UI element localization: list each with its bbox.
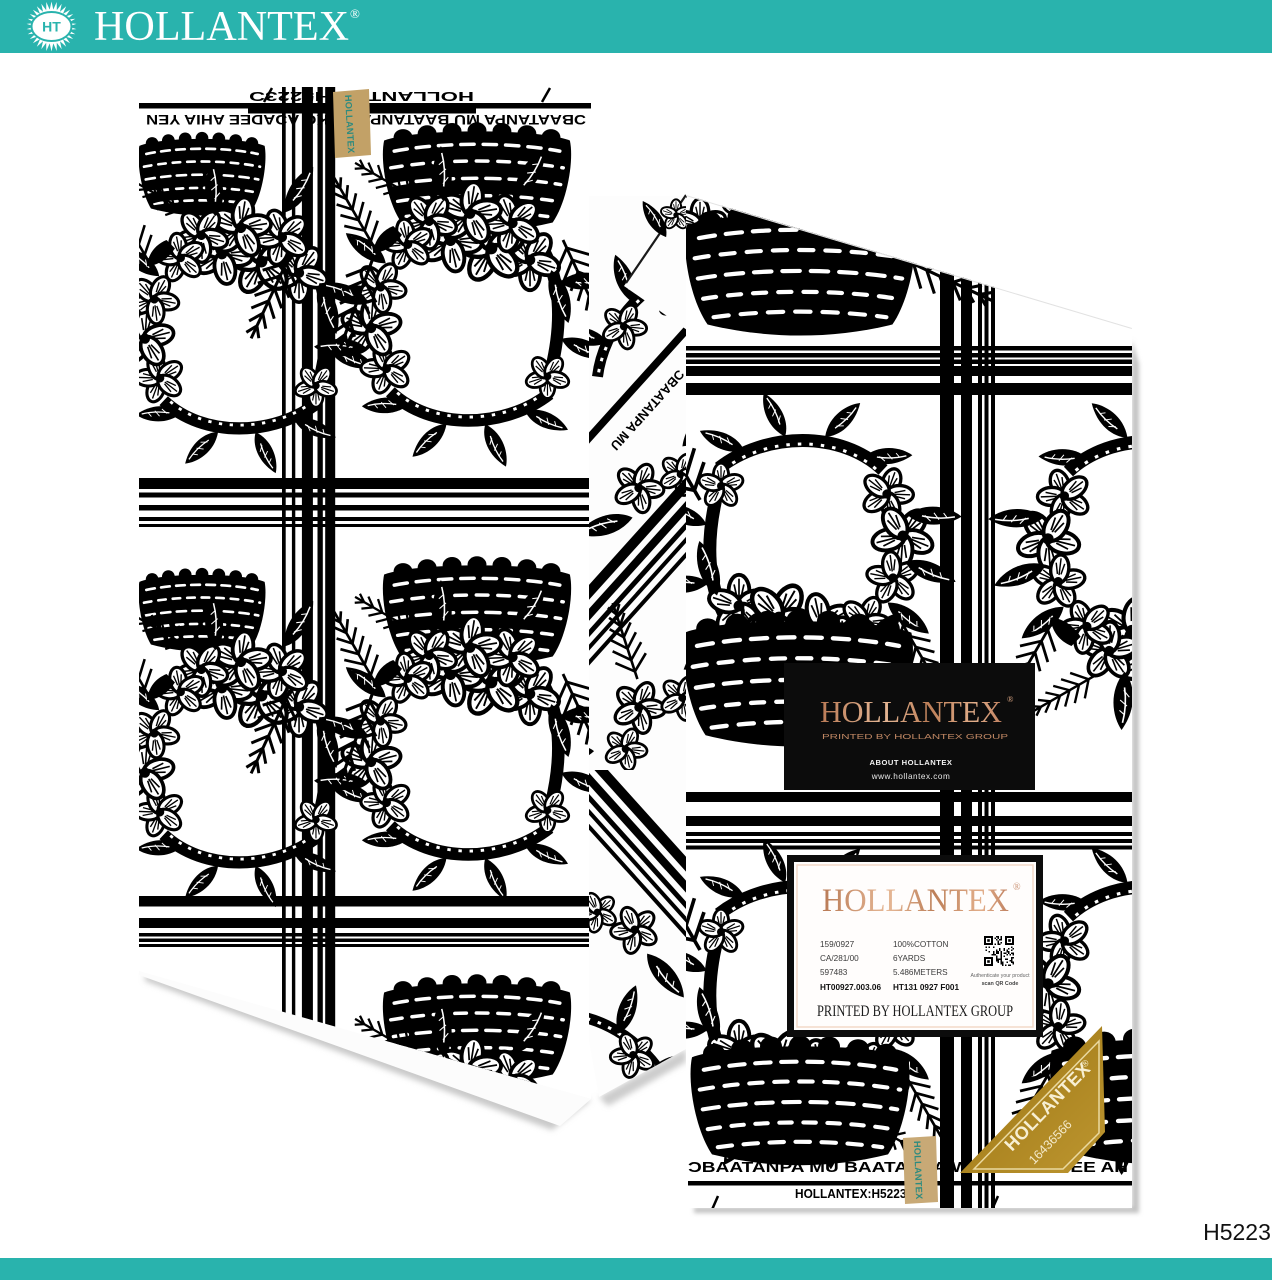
svg-text:CA/281/00: CA/281/00	[820, 954, 859, 963]
svg-text:ABOUT HOLLANTEX: ABOUT HOLLANTEX	[869, 758, 952, 767]
svg-text:HOLLANTEX: HOLLANTEX	[912, 1141, 924, 1201]
svg-text:HOLLANTEX:H5223Ɔ: HOLLANTEX:H5223Ɔ	[795, 1186, 915, 1201]
svg-text:scan QR Code: scan QR Code	[982, 981, 1019, 987]
svg-text:HOLLANTEX: HOLLANTEX	[94, 4, 349, 50]
svg-text:H5223: H5223	[1203, 1219, 1271, 1245]
svg-text:5.486METERS: 5.486METERS	[893, 968, 948, 977]
svg-text:597483: 597483	[820, 968, 848, 977]
svg-text:®: ®	[1007, 694, 1014, 704]
svg-text:®: ®	[1013, 882, 1021, 893]
svg-text:159/0927: 159/0927	[820, 940, 855, 949]
svg-text:HOLLANTEX: HOLLANTEX	[822, 883, 1009, 919]
svg-text:PRINTED BY HOLLANTEX GROUP: PRINTED BY HOLLANTEX GROUP	[822, 732, 1008, 741]
svg-text:HT131 0927 F001: HT131 0927 F001	[893, 983, 959, 992]
svg-text:100%COTTON: 100%COTTON	[893, 940, 948, 949]
svg-text:HOLLANTEX: HOLLANTEX	[820, 694, 1002, 729]
svg-text:www.hollantex.com: www.hollantex.com	[871, 772, 951, 781]
svg-text:Authenticate your product: Authenticate your product	[970, 973, 1030, 979]
svg-text:®: ®	[350, 6, 360, 21]
svg-text:PRINTED BY HOLLANTEX GROUP: PRINTED BY HOLLANTEX GROUP	[817, 1003, 1013, 1020]
svg-text:6YARDS: 6YARDS	[893, 954, 926, 963]
svg-text:HT00927.003.06: HT00927.003.06	[820, 983, 881, 992]
svg-text:HT: HT	[42, 19, 61, 35]
